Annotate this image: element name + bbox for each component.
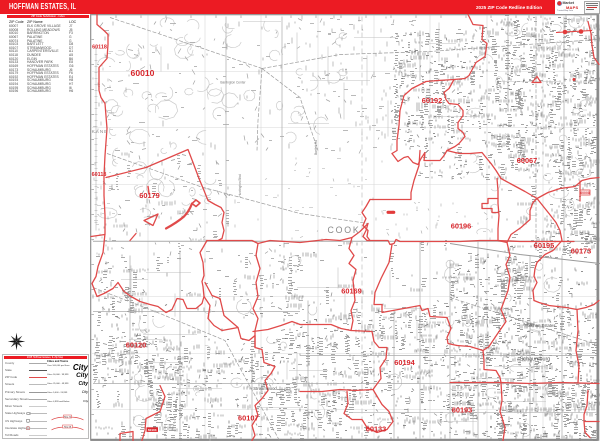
svg-text:60169: 60169 [341, 286, 362, 295]
svg-text:60103: 60103 [148, 428, 157, 432]
svg-text:Hwy 58: Hwy 58 [64, 427, 72, 429]
svg-text:Streamwood: Streamwood [253, 386, 277, 391]
svg-text:60118: 60118 [92, 44, 107, 50]
svg-text:60194: 60194 [394, 358, 415, 367]
svg-text:KANE: KANE [92, 129, 109, 134]
svg-text:60133: 60133 [366, 424, 387, 433]
svg-text:60195: 60195 [534, 241, 555, 250]
svg-text:60193: 60193 [452, 405, 473, 414]
svg-text:Bartlett Rd: Bartlett Rd [314, 139, 318, 154]
svg-text:Barrington Center: Barrington Center [220, 80, 246, 84]
svg-text:Schaumburg: Schaumburg [520, 356, 551, 362]
svg-text:60008: 60008 [580, 191, 590, 195]
svg-text:60120: 60120 [126, 340, 147, 349]
svg-text:60067: 60067 [517, 156, 538, 165]
svg-text:60192: 60192 [422, 96, 443, 105]
svg-text:Hoffman Estates: Hoffman Estates [525, 323, 556, 328]
svg-text:60173: 60173 [571, 246, 592, 255]
svg-text:60196: 60196 [451, 221, 472, 230]
svg-text:COOK: COOK [327, 225, 360, 235]
svg-text:60179: 60179 [139, 191, 160, 200]
svg-text:Huntington Blvd: Huntington Blvd [238, 174, 242, 197]
svg-text:Hwy 72: Hwy 72 [64, 417, 72, 419]
svg-text:60118: 60118 [92, 172, 107, 178]
svg-text:60107: 60107 [238, 413, 259, 422]
svg-text:60010: 60010 [131, 68, 155, 78]
